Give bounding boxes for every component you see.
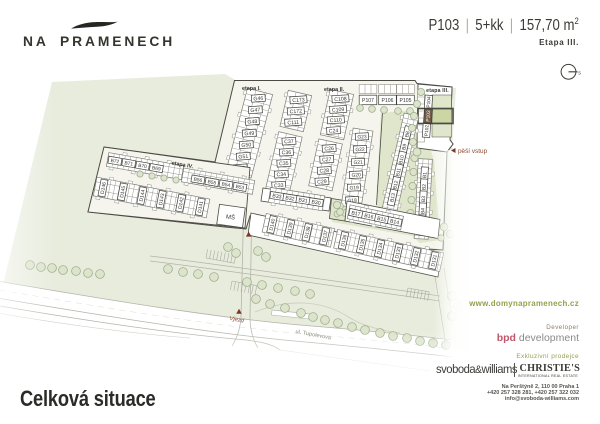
svg-text:P105: P105 — [400, 98, 412, 104]
svg-text:P102: P102 — [424, 124, 431, 136]
svg-text:G50: G50 — [241, 142, 251, 149]
svg-text:pěší vstup: pěší vstup — [458, 148, 488, 155]
svg-text:G21: G21 — [353, 160, 363, 166]
svg-text:C27: C27 — [322, 157, 332, 164]
svg-text:B3: B3 — [421, 196, 427, 203]
svg-text:G22: G22 — [355, 147, 365, 153]
svg-text:B1: B1 — [422, 172, 428, 179]
svg-text:P107: P107 — [362, 98, 374, 104]
svg-text:C37: C37 — [284, 139, 294, 146]
svg-text:C28: C28 — [319, 168, 329, 175]
svg-text:G47: G47 — [250, 107, 260, 114]
svg-text:C24: C24 — [329, 128, 339, 135]
svg-text:G19: G19 — [349, 185, 359, 191]
svg-text:C26: C26 — [324, 146, 334, 153]
svg-text:MŠ: MŠ — [225, 213, 235, 221]
svg-text:G48: G48 — [247, 119, 257, 126]
svg-text:B4: B4 — [420, 208, 426, 215]
svg-text:B2: B2 — [422, 184, 428, 191]
svg-text:C109: C109 — [332, 107, 345, 114]
svg-text:P106: P106 — [382, 98, 394, 104]
svg-text:C110: C110 — [330, 117, 342, 124]
svg-text:etapa II.: etapa II. — [324, 87, 345, 93]
svg-text:C108: C108 — [334, 96, 347, 103]
svg-text:C173: C173 — [292, 97, 305, 104]
svg-text:C36: C36 — [282, 150, 292, 157]
svg-text:etapa I.: etapa I. — [242, 86, 261, 92]
svg-text:G49: G49 — [244, 131, 254, 138]
svg-text:P104: P104 — [426, 96, 433, 108]
svg-text:C35: C35 — [279, 161, 289, 168]
svg-text:C34: C34 — [276, 172, 286, 179]
svg-text:P103: P103 — [425, 110, 432, 122]
svg-text:s: s — [578, 70, 581, 76]
svg-text:G51: G51 — [238, 154, 248, 161]
svg-text:G46: G46 — [253, 96, 263, 103]
svg-text:G20: G20 — [351, 172, 361, 178]
svg-text:C111: C111 — [287, 120, 299, 127]
svg-text:G23: G23 — [357, 134, 367, 140]
svg-text:C29: C29 — [317, 179, 327, 186]
svg-text:etapa III.: etapa III. — [426, 88, 449, 94]
svg-text:C172: C172 — [289, 108, 302, 115]
